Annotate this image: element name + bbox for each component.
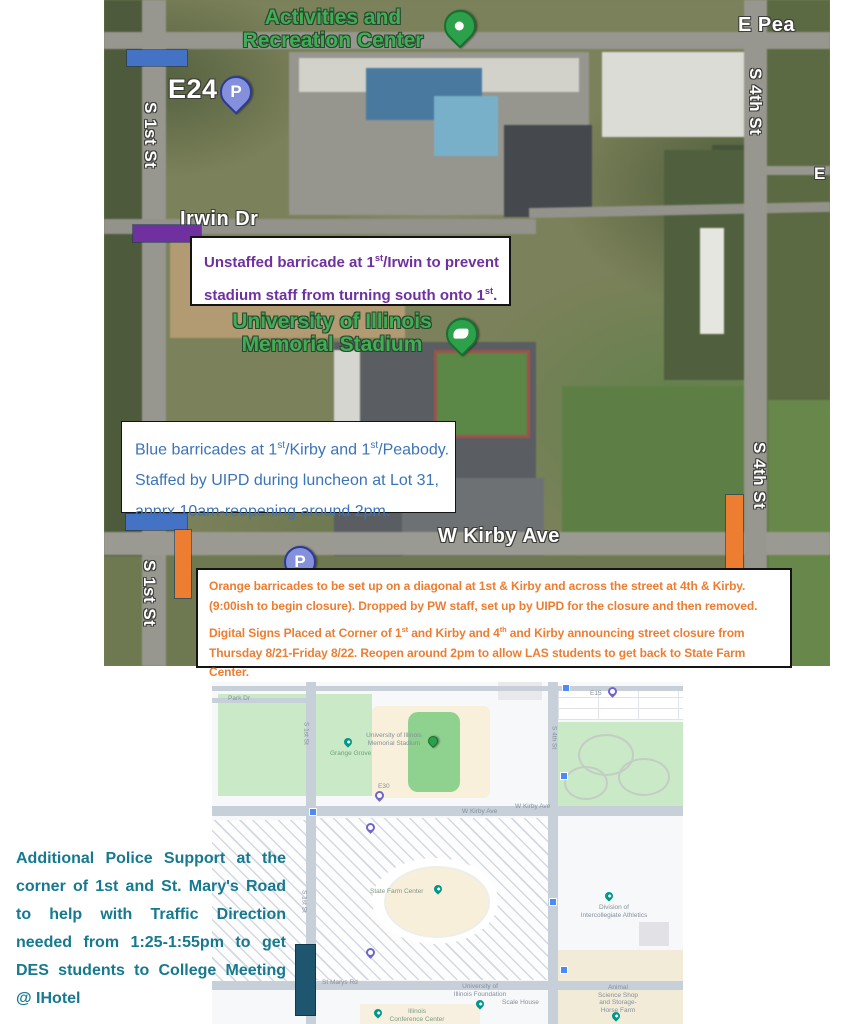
label-line: Science Shop [594, 992, 642, 1000]
pin-dot [607, 894, 611, 898]
note-text: /Peabody. [378, 441, 449, 458]
w-kirby-label-west: W Kirby Ave [462, 808, 497, 816]
arc-label-line2: Recreation Center [220, 29, 446, 52]
orange-barricade-1st-kirby [175, 530, 191, 598]
orange-barricade-4th-kirby [726, 495, 743, 568]
note-text: and Kirby and 4 [408, 626, 500, 640]
dia-label: Division of Intercollegiate Athletics [574, 904, 654, 919]
park-path [618, 758, 670, 796]
pin-dot [609, 688, 616, 695]
transit-stop-icon [560, 966, 568, 974]
satellite-map: E Pea S 1st St Irwin Dr S 4th St E W Kir… [104, 0, 830, 666]
note-text: /Kirby and 1 [285, 441, 370, 458]
blue-barricade-peabody [127, 50, 187, 66]
ordinal-sup: st [485, 286, 493, 296]
animal-science-label: Animal Science Shop and Storage- Horse F… [594, 984, 642, 1014]
street-label-s-4th-lower: S 4th St [749, 442, 769, 509]
lot-e24-label: E24 [168, 74, 218, 105]
scale-house-label: Scale House [502, 999, 539, 1007]
street-label-s-1st-upper: S 1st St [140, 102, 160, 168]
arc-label: Activities and Recreation Center [220, 6, 446, 52]
label-line: Intercollegiate Athletics [574, 912, 654, 920]
stadium-bowl [408, 712, 460, 792]
note-line: stadium staff from turning south onto 1s… [204, 277, 497, 310]
label-line: University of Illinois [362, 732, 426, 740]
arc-pool-2 [434, 96, 498, 156]
note-paragraph: Orange barricades to be set up on a diag… [209, 577, 779, 616]
road-park-dr [212, 698, 308, 703]
w-kirby-label-east: W Kirby Ave [515, 803, 550, 811]
lot-e30-label: E30 [378, 783, 390, 791]
label-line: Conference Center [386, 1016, 448, 1024]
pin-dot [453, 20, 466, 33]
pin-dot [367, 949, 374, 956]
dia-pin [603, 890, 614, 901]
park-path [564, 766, 608, 800]
street-label-e-partial: E [814, 164, 826, 184]
note-text: /Irwin to prevent [383, 254, 499, 271]
label-line: Memorial Stadium [362, 740, 426, 748]
pin-dot [367, 824, 374, 831]
unstaffed-barricade-note: Unstaffed barricade at 1st/Irwin to prev… [190, 236, 511, 306]
transit-stop-icon [562, 684, 570, 692]
pin-dot [376, 792, 383, 799]
police-support-note: Additional Police Support at the corner … [16, 845, 286, 1013]
note-line: apprx 10am-reopening around 2pm. [135, 496, 442, 527]
icc-label: Illinois Conference Center [386, 1008, 448, 1023]
ordinal-sup: st [277, 440, 285, 451]
arc-label-line1: Activities and [220, 6, 446, 29]
note-line: Staffed by UIPD during luncheon at Lot 3… [135, 465, 442, 496]
label-line: Illinois [386, 1008, 448, 1016]
note-line: Blue barricades at 1st/Kirby and 1st/Pea… [135, 430, 442, 465]
street-label-e-peabody: E Pea [738, 14, 795, 37]
note-text: Blue barricades at 1 [135, 441, 277, 458]
note-text: Unstaffed barricade at 1 [204, 254, 375, 271]
pin-dot [346, 740, 350, 744]
note-text: . [493, 287, 497, 304]
uif-label: University of Illinois Foundation [450, 983, 510, 998]
parking-p-glyph: P [222, 78, 250, 106]
label-line: Animal [594, 984, 642, 992]
park-dr-label: Park Dr [228, 695, 250, 703]
s-1st-label-lower: S 1st St [300, 890, 308, 913]
blue-barricades-note: Blue barricades at 1st/Kirby and 1st/Pea… [121, 421, 456, 513]
parking-grid [558, 686, 683, 720]
s-4th-label: S 4th St [550, 726, 558, 749]
label-line: University of [450, 983, 510, 991]
top-building [498, 682, 542, 700]
s-1st-label-upper: S 1st St [302, 722, 310, 745]
stadium-label-line2: Memorial Stadium [216, 333, 448, 356]
street-label-s-1st-lower: S 1st St [139, 560, 159, 626]
state-farm-center-label: State Farm Center [370, 888, 423, 895]
transit-stop-icon [309, 808, 317, 816]
note-text: Digital Signs Placed at Corner of 1 [209, 626, 402, 640]
stadium-label-line1: University of Illinois [216, 310, 448, 333]
white-building-2 [700, 228, 724, 334]
transit-stop-icon [549, 898, 557, 906]
label-line: Division of [574, 904, 654, 912]
pin-dot [376, 1011, 380, 1015]
stadium-small-label: University of Illinois Memorial Stadium [362, 732, 426, 747]
ordinal-sup: th [500, 625, 507, 634]
ordinal-sup: st [375, 253, 383, 263]
grange-grove-label: Grange Grove [330, 750, 371, 757]
orange-barricades-note: Orange barricades to be set up on a diag… [196, 568, 792, 668]
pin-dot [614, 1014, 618, 1018]
transit-stop-icon [560, 772, 568, 780]
note-line: Unstaffed barricade at 1st/Irwin to prev… [204, 244, 497, 277]
st-marys-rd-label: St Marys Rd [322, 979, 358, 987]
label-line: Illinois Foundation [450, 991, 510, 999]
pin-dot [436, 887, 440, 891]
street-label-s-4th-upper: S 4th St [745, 68, 765, 135]
stadium-label: University of Illinois Memorial Stadium [216, 310, 448, 356]
lot-e15-label: E15 [590, 690, 602, 698]
ordinal-sup: st [370, 440, 378, 451]
street-label-w-kirby: W Kirby Ave [438, 525, 560, 548]
road-w-kirby [212, 806, 683, 816]
teal-barricade-1st-st-marys [296, 945, 315, 1015]
state-farm-center-oval [384, 866, 490, 938]
east-practice-fields [562, 386, 744, 532]
label-line: and Storage- [594, 999, 642, 1007]
grey-building [639, 922, 669, 946]
note-text: stadium staff from turning south onto 1 [204, 287, 485, 304]
street-closure-plan-page: E Pea S 1st St Irwin Dr S 4th St E W Kir… [0, 0, 848, 1024]
stadium-glyph [453, 329, 468, 339]
pin-dot [478, 1002, 482, 1006]
arc-dark-roof [504, 125, 592, 217]
note-paragraph: Digital Signs Placed at Corner of 1st an… [209, 620, 779, 683]
